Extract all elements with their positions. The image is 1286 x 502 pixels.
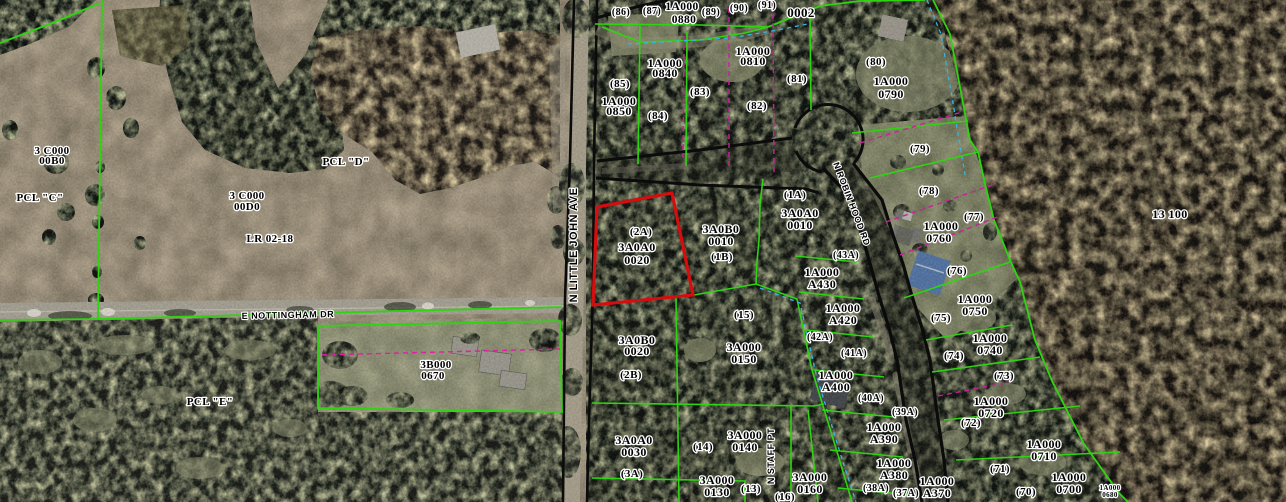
- svg-text:(15): (15): [734, 309, 754, 321]
- svg-text:0160: 0160: [797, 482, 823, 496]
- svg-text:0740: 0740: [977, 343, 1003, 357]
- svg-text:(90): (90): [730, 3, 748, 14]
- svg-text:E NOTTINGHAM DR: E NOTTINGHAM DR: [242, 309, 335, 321]
- svg-text:00D0: 00D0: [234, 201, 260, 213]
- svg-text:0880: 0880: [672, 14, 697, 26]
- svg-text:(79): (79): [910, 143, 930, 155]
- svg-text:(71): (71): [990, 463, 1010, 475]
- svg-text:1A000: 1A000: [665, 1, 698, 13]
- svg-text:(39A): (39A): [892, 407, 918, 418]
- svg-text:(76): (76): [947, 265, 967, 277]
- svg-text:(13): (13): [741, 483, 761, 495]
- svg-text:1A000: 1A000: [874, 74, 909, 88]
- svg-text:0700: 0700: [1056, 482, 1082, 496]
- svg-text:(3A): (3A): [621, 468, 643, 480]
- svg-text:(42A): (42A): [807, 332, 833, 343]
- svg-text:(89): (89): [702, 7, 720, 18]
- svg-text:0760: 0760: [926, 231, 952, 245]
- svg-text:A420: A420: [829, 313, 857, 327]
- svg-text:(73): (73): [994, 370, 1014, 382]
- svg-text:(2A): (2A): [630, 226, 652, 238]
- svg-text:0010: 0010: [708, 234, 734, 248]
- svg-text:A370: A370: [923, 486, 951, 500]
- svg-text:(85): (85): [610, 78, 630, 90]
- svg-text:(70): (70): [1016, 486, 1036, 498]
- svg-text:(72): (72): [961, 417, 981, 429]
- svg-text:(78): (78): [919, 185, 939, 197]
- svg-text:(38A): (38A): [863, 483, 889, 494]
- svg-text:(1B): (1B): [711, 251, 733, 263]
- svg-text:N STAFF PT: N STAFF PT: [766, 428, 776, 484]
- svg-text:0850: 0850: [606, 104, 632, 118]
- svg-text:0020: 0020: [624, 253, 650, 267]
- svg-text:(75): (75): [931, 312, 951, 324]
- svg-text:0720: 0720: [978, 406, 1004, 420]
- svg-text:0750: 0750: [962, 304, 988, 318]
- svg-text:(86): (86): [612, 7, 630, 18]
- svg-text:0140: 0140: [732, 440, 758, 454]
- svg-text:(1A): (1A): [784, 189, 806, 201]
- svg-text:(43A): (43A): [833, 250, 859, 261]
- svg-text:0020: 0020: [624, 344, 650, 358]
- svg-text:(87): (87): [643, 6, 661, 17]
- svg-text:0010: 0010: [787, 218, 813, 232]
- svg-text:0710: 0710: [1031, 449, 1057, 463]
- svg-text:N LITTLE JOHN AVE: N LITTLE JOHN AVE: [568, 188, 580, 303]
- svg-text:0030: 0030: [621, 445, 647, 459]
- svg-text:0840: 0840: [652, 66, 678, 80]
- svg-text:(16): (16): [775, 491, 795, 502]
- svg-text:0002: 0002: [787, 5, 815, 20]
- svg-text:(37A): (37A): [893, 488, 919, 499]
- svg-text:0680: 0680: [1102, 491, 1118, 499]
- svg-text:(91): (91): [758, 0, 776, 11]
- svg-text:(84): (84): [648, 110, 668, 122]
- svg-text:A380: A380: [880, 468, 908, 482]
- svg-text:0790: 0790: [878, 87, 904, 101]
- svg-text:(41A): (41A): [841, 348, 867, 359]
- svg-text:(40A): (40A): [858, 393, 884, 404]
- svg-text:PCL "E": PCL "E": [187, 396, 234, 408]
- svg-text:0670: 0670: [421, 370, 445, 382]
- svg-text:LR 02-18: LR 02-18: [247, 233, 294, 245]
- svg-text:0810: 0810: [740, 54, 766, 68]
- svg-text:(77): (77): [964, 211, 984, 223]
- svg-text:(82): (82): [747, 100, 767, 112]
- svg-text:(74): (74): [944, 350, 964, 362]
- svg-text:A400: A400: [822, 380, 850, 394]
- svg-text:A390: A390: [870, 432, 898, 446]
- svg-text:0130: 0130: [704, 485, 730, 499]
- svg-text:3A0A0: 3A0A0: [618, 240, 655, 254]
- svg-text:A430: A430: [808, 277, 836, 291]
- svg-text:(2B): (2B): [620, 369, 642, 381]
- svg-text:13 100: 13 100: [1152, 207, 1187, 221]
- svg-text:(83): (83): [690, 86, 710, 98]
- svg-text:0150: 0150: [731, 352, 757, 366]
- svg-text:PCL "D": PCL "D": [322, 156, 369, 168]
- svg-text:(81): (81): [787, 73, 807, 85]
- svg-text:PCL "C": PCL "C": [16, 192, 63, 204]
- svg-text:(80): (80): [866, 56, 886, 68]
- svg-text:00B0: 00B0: [39, 155, 65, 167]
- svg-text:(14): (14): [693, 441, 713, 453]
